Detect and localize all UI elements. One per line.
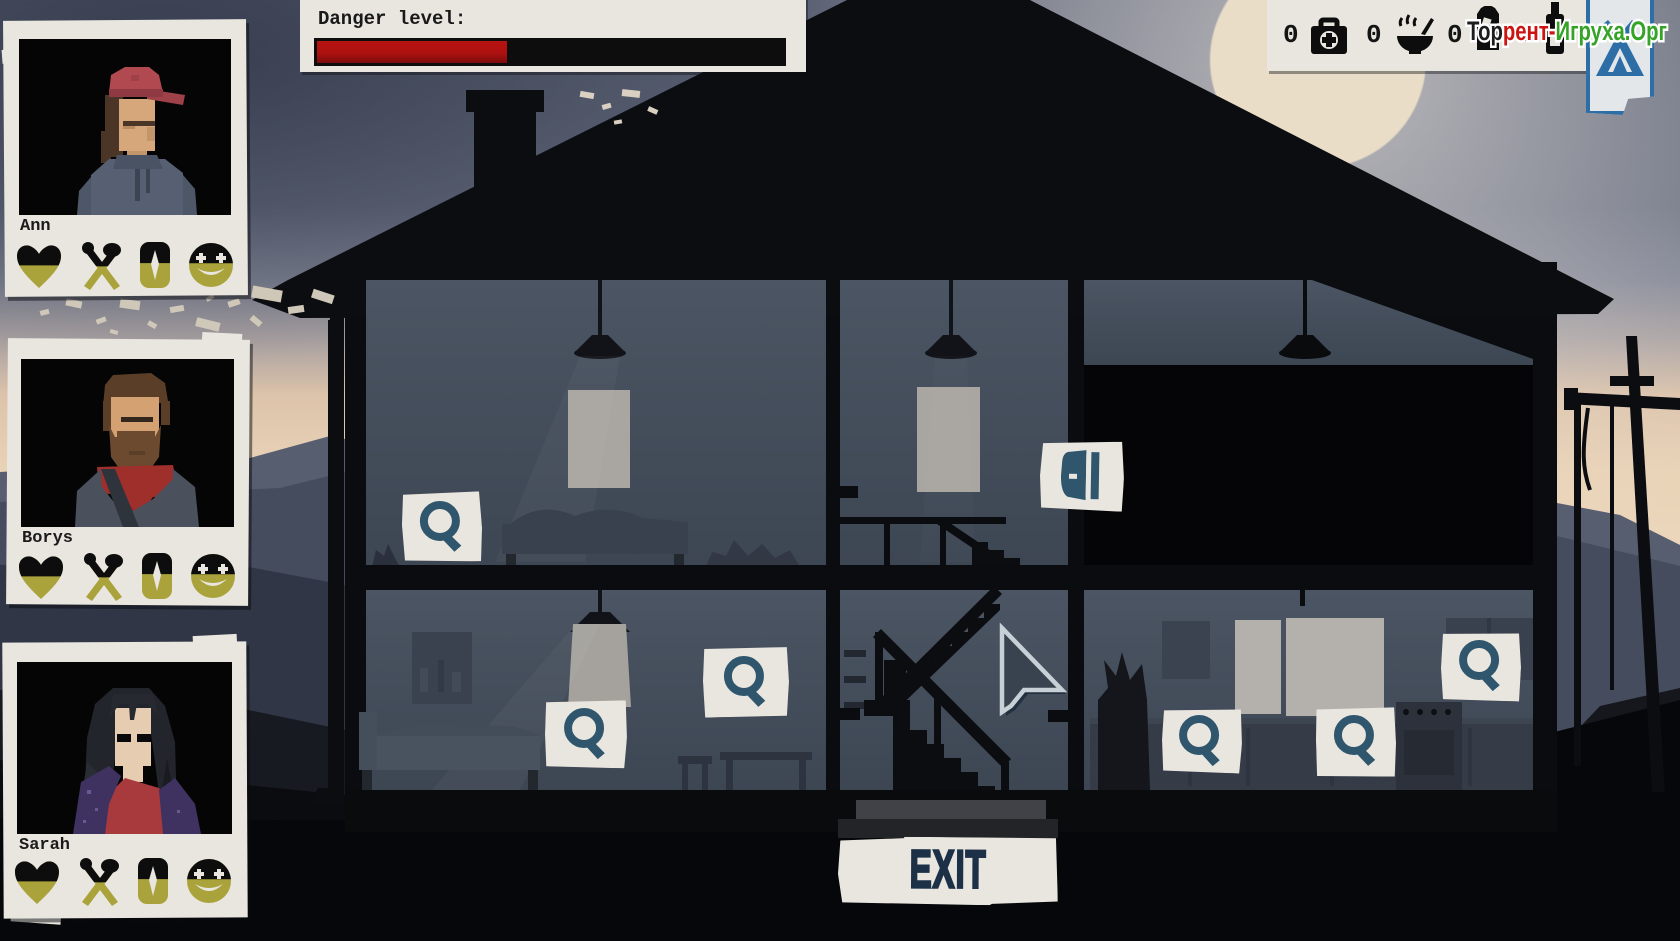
svg-text:Торрент-Игруха.Орг: Торрент-Игруха.Орг bbox=[1467, 16, 1667, 46]
